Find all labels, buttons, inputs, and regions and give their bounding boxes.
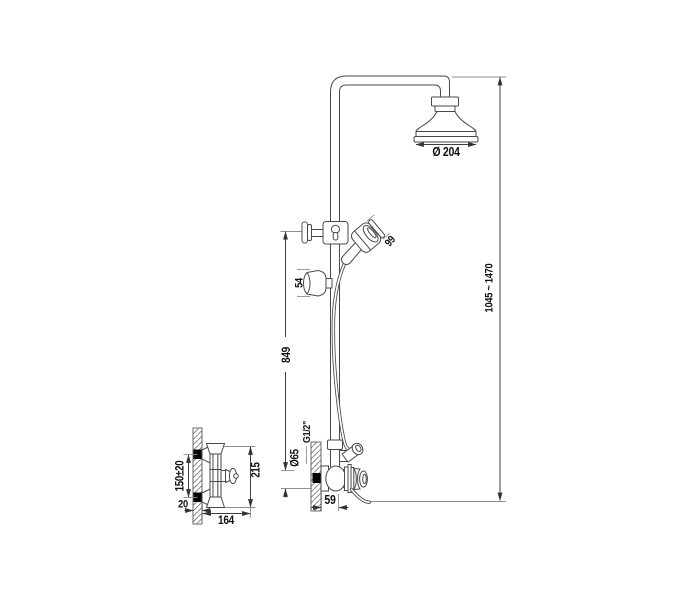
technical-drawing-canvas: Ø 204 1045 ~ 1470 849 66 54 Ø65 G1/2" 59… [0,0,675,600]
dim-label-valve-depth: 164 [218,514,234,526]
hand-shower-hose [333,259,357,450]
dim-label-valve-body-height: 215 [251,462,263,477]
dim-label-valve-offset: 59 [324,493,335,506]
slider-bracket [302,222,348,245]
dim-label-wall-plate-depth: 20 [178,500,188,511]
outlet-hose [352,490,370,503]
dim-label-connection-thread: G1/2" [302,421,313,443]
mixer-valve-front [321,440,367,493]
wall-section-side-view [193,428,202,524]
dim-label-head-diameter: Ø 204 [432,145,459,158]
dim-label-rail-length: 849 [280,347,292,363]
hand-shower-holder [304,271,333,297]
wall-anchor-main [313,473,322,483]
dim-label-holder-diameter: 54 [295,278,306,288]
mixer-valve-side [202,444,238,508]
shower-system-line-drawing [0,0,675,600]
rain-shower-head [414,97,478,142]
dim-label-mounting-distance: 150±20 [175,461,187,492]
dim-label-escutcheon-diameter: Ø65 [290,449,302,467]
wall-section-front-view [311,442,321,511]
dim-label-height-range: 1045 ~ 1470 [484,264,495,313]
